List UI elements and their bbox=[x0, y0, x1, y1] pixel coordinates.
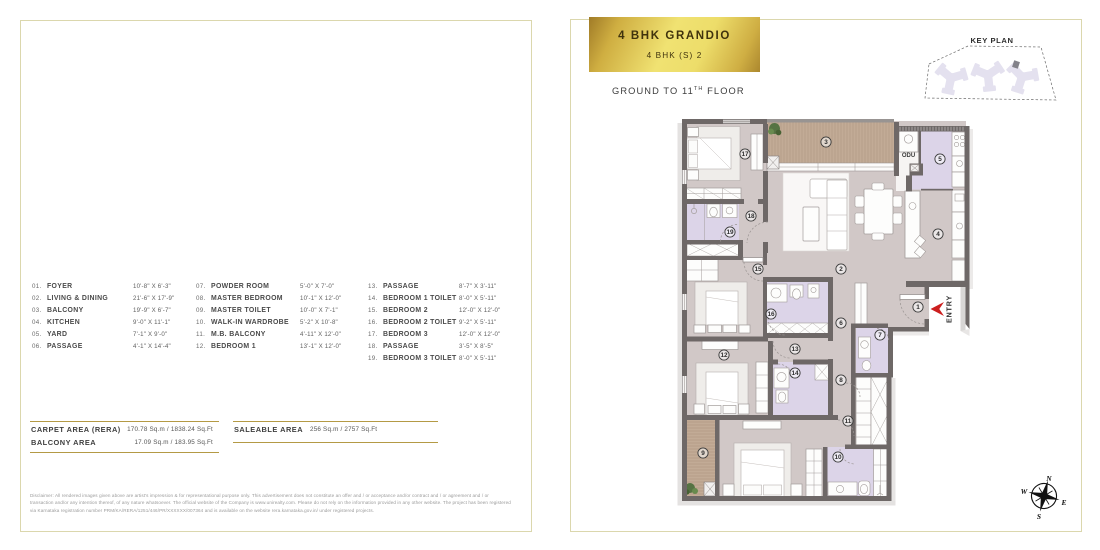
svg-text:N: N bbox=[1045, 474, 1052, 483]
svg-text:1: 1 bbox=[916, 304, 920, 311]
svg-text:E: E bbox=[1060, 498, 1066, 507]
svg-text:W: W bbox=[1021, 487, 1029, 496]
svg-text:ENTRY: ENTRY bbox=[945, 295, 954, 323]
svg-text:13: 13 bbox=[791, 346, 799, 353]
svg-text:15: 15 bbox=[754, 266, 762, 273]
svg-text:19: 19 bbox=[726, 229, 734, 236]
svg-text:12: 12 bbox=[720, 352, 728, 359]
svg-text:4: 4 bbox=[936, 231, 940, 238]
svg-text:14: 14 bbox=[791, 370, 799, 377]
svg-text:6: 6 bbox=[839, 320, 843, 327]
svg-text:3: 3 bbox=[824, 139, 828, 146]
svg-text:2: 2 bbox=[839, 266, 843, 273]
svg-text:16: 16 bbox=[767, 311, 775, 318]
svg-text:10: 10 bbox=[834, 454, 842, 461]
svg-text:8: 8 bbox=[839, 377, 843, 384]
svg-text:11: 11 bbox=[845, 418, 852, 425]
svg-text:ODU: ODU bbox=[902, 153, 915, 159]
svg-text:18: 18 bbox=[747, 213, 755, 220]
svg-text:7: 7 bbox=[878, 332, 882, 339]
svg-text:S: S bbox=[1037, 512, 1041, 521]
svg-text:KEY PLAN: KEY PLAN bbox=[970, 36, 1013, 45]
svg-text:17: 17 bbox=[741, 151, 749, 158]
svg-text:5: 5 bbox=[938, 156, 942, 163]
svg-text:9: 9 bbox=[701, 450, 705, 457]
